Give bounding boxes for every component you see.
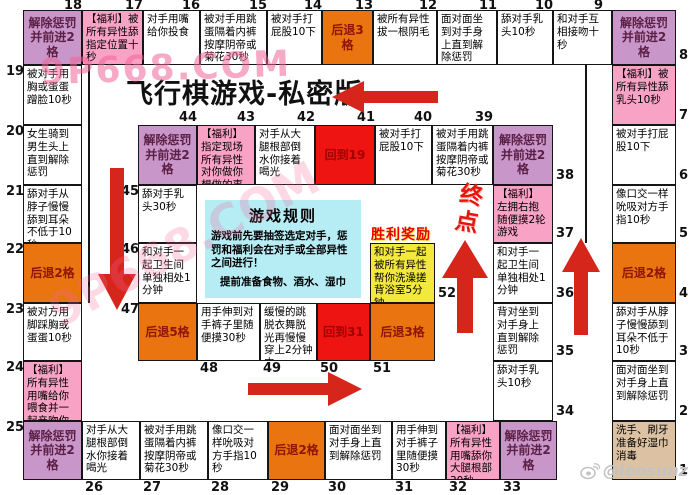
cell-text: 后退3格: [326, 23, 369, 52]
board-cell-29: 后退2格: [268, 421, 325, 480]
board-cell-48: 用手伸到对手裤子里随便摸30秒: [197, 303, 260, 361]
cell-number: 42: [297, 112, 315, 124]
cell-text: 被对手用跳蛋隔着内裤按摩阴帝或菊花30秒: [436, 128, 489, 179]
board-cell-7: 【福利】被所有异性舔乳头10秒: [612, 65, 676, 125]
cell-number: 11: [479, 0, 497, 12]
cell-text: 【福利】所有异性用嘴舔你大腿根部30秒: [450, 424, 496, 480]
cell-text: 对手从大腿根部倒水你接着喝光: [86, 424, 136, 475]
cell-number: 17: [125, 0, 143, 12]
cell-text: 被所有异性拔一根阴毛: [377, 13, 433, 39]
cell-text: 和对手一起卫生间单独相处1分钟: [497, 246, 549, 297]
board-cell-25: 解除惩罚并前进2格: [23, 421, 82, 480]
cell-number: 28: [211, 482, 229, 494]
cell-text: 背对坐到对手身上直到解除惩罚: [497, 306, 549, 357]
arrow-up-right-icon: [562, 238, 600, 335]
board-cell-52: 和对手一起被所有异性帮你洗澡搓背浴室5分钟: [370, 243, 435, 303]
cell-number: 44: [179, 112, 197, 124]
cell-text: 后退5格: [145, 325, 189, 340]
board-cell-33: 解除惩罚并前进2格: [500, 421, 557, 480]
board-cell-2: 面对面坐到对手身上直到解除惩罚: [612, 361, 676, 421]
right-divider-line: [585, 65, 587, 243]
board-cell-10: 舔对手乳头10秒: [497, 10, 553, 65]
cell-text: 和对手一起被所有异性帮你洗澡搓背浴室5分钟: [374, 246, 431, 303]
board-cell-36: 和对手一起卫生间单独相处1分钟: [493, 243, 553, 303]
cell-number: 39: [475, 112, 493, 124]
cell-number: 18: [64, 0, 82, 12]
cell-number: 10: [535, 0, 553, 12]
cell-text: 舔对手乳头10秒: [497, 364, 549, 390]
cell-number: 43: [237, 112, 255, 124]
cell-text: 被对手打屁股10下: [271, 13, 318, 39]
credit-text: @leosunz: [603, 461, 688, 480]
cell-number: 31: [395, 482, 413, 494]
cell-text: 被对手打屁股10下: [616, 128, 672, 154]
board-cell-11: 面对面坐到对手身上直到解除惩罚: [437, 10, 497, 65]
cell-text: 后退2格: [622, 266, 666, 281]
arrow-left-icon: [332, 81, 438, 113]
cell-text: 像口交一样吮吸对方手指10秒: [616, 188, 672, 226]
cell-number: 7: [679, 110, 688, 122]
board-cell-38: 解除惩罚并前进2格: [493, 125, 553, 185]
cell-text: 【福利】左拥右抱随便摸2轮游戏: [497, 188, 549, 239]
cell-number: 13: [355, 0, 373, 12]
cell-text: 解除惩罚并前进2格: [142, 133, 193, 177]
cell-text: 和对手互相接吻十秒: [557, 13, 608, 51]
board-cell-31: 用手伸到对手裤子里随便摸30秒: [392, 421, 446, 480]
cell-text: 像口交一样吮吸对方手指10秒: [212, 424, 264, 475]
board-cell-26: 对手从大腿根部倒水你接着喝光: [82, 421, 140, 480]
cell-number: 20: [6, 126, 24, 138]
board-cell-9: 和对手互相接吻十秒: [553, 10, 612, 65]
cell-text: 回到19: [325, 148, 366, 163]
cell-number: 9: [594, 0, 603, 12]
cell-number: 41: [357, 112, 375, 124]
board-cell-21: 舔对手从脖子慢慢舔到耳朵不低于10秒: [23, 185, 82, 243]
board-cell-27: 被对手用跳蛋隔着内裤按摩阴帝或菊花30秒: [140, 421, 208, 480]
board-cell-49: 缓慢的跳脱衣舞脱光再慢慢穿上2分钟内: [260, 303, 317, 361]
arrow-up-finish-icon: [442, 240, 488, 333]
board-cell-12: 被所有异性拔一根阴毛: [373, 10, 437, 65]
cell-number: 14: [304, 0, 322, 12]
cell-text: 用手伸到对手裤子里随便摸30秒: [201, 306, 256, 344]
board: 飞行棋游戏-私密版 游戏规则 游戏前先要抽签选定对手，惩罚和福利会在对手或全部异…: [0, 0, 700, 495]
cell-text: 被对手用跳蛋隔着内裤按摩阴帝或菊花30秒: [144, 424, 204, 475]
cell-text: 解除惩罚并前进2格: [27, 429, 78, 473]
cell-text: 用手伸到对手裤子里随便摸30秒: [396, 424, 442, 475]
cell-text: 面对面坐到对手身上直到解除惩罚: [616, 364, 672, 402]
cell-number: 2: [679, 406, 688, 418]
arrow-right-icon: [248, 372, 362, 406]
cell-number: 8: [679, 50, 688, 62]
cell-text: 被对手打屁股10下: [379, 128, 428, 154]
board-cell-41: 回到19: [315, 125, 375, 185]
cell-number: 26: [85, 482, 103, 494]
cell-number: 48: [200, 363, 218, 375]
cell-text: 回到31: [323, 325, 364, 340]
cell-number: 30: [328, 482, 346, 494]
board-cell-50: 回到31: [317, 303, 370, 361]
board-cell-13: 后退3格: [322, 10, 373, 65]
cell-number: 6: [679, 170, 688, 182]
victory-reward-label: 胜利奖励: [371, 224, 431, 244]
board-cell-28: 像口交一样吮吸对方手指10秒: [208, 421, 268, 480]
board-cell-47: 后退5格: [138, 303, 197, 361]
weibo-icon: [580, 462, 600, 480]
cell-number: 15: [249, 0, 267, 12]
cell-text: 解除惩罚并前进2格: [497, 133, 549, 177]
cell-number: 35: [556, 346, 574, 358]
board-cell-6: 被对手打屁股10下: [612, 125, 676, 185]
board-cell-4: 后退2格: [612, 243, 676, 303]
rules-prep-text: 提前准备食物、酒水、湿巾: [211, 276, 355, 290]
cell-text: 面对面坐到对手身上直到解除惩罚: [441, 13, 493, 64]
cell-text: 【福利】所有异性用嘴给你喂食并一起亲吻你: [27, 364, 78, 421]
board-cell-8: 解除惩罚并前进2格: [612, 10, 676, 65]
cell-number: 27: [143, 482, 161, 494]
board-cell-37: 【福利】左拥右抱随便摸2轮游戏: [493, 185, 553, 243]
cell-number: 12: [419, 0, 437, 12]
cell-number: 32: [449, 482, 467, 494]
cell-number: 38: [556, 170, 574, 182]
cell-number: 25: [6, 422, 24, 434]
cell-text: 洗手、刷牙准备好湿巾消毒: [616, 424, 672, 462]
board-cell-39: 被对手用跳蛋隔着内裤按摩阴帝或菊花30秒: [432, 125, 493, 185]
cell-text: 对手用嘴给你投食: [147, 13, 196, 39]
cell-text: 【福利】被所有异性舔乳头10秒: [616, 68, 672, 106]
cell-number: 33: [503, 482, 521, 494]
cell-text: 解除惩罚并前进2格: [504, 429, 553, 473]
cell-number: 34: [556, 406, 574, 418]
board-cell-20: 女生骑到男生头上直到解除惩罚: [23, 125, 82, 185]
finish-label: 终点: [445, 179, 488, 238]
board-cell-51: 后退3格: [370, 303, 435, 361]
watermark-top: 9P668.COM: [39, 44, 291, 94]
cell-number: 29: [271, 482, 289, 494]
cell-text: 女生骑到男生头上直到解除惩罚: [27, 128, 78, 179]
cell-text: 舔对手乳头30秒: [142, 188, 193, 214]
board-cell-3: 舔对手从脖子慢慢舔到耳朵不低于10秒: [612, 303, 676, 361]
board-cell-32: 【福利】所有异性用嘴舔你大腿根部30秒: [446, 421, 500, 480]
cell-text: 解除惩罚并前进2格: [616, 16, 672, 60]
credit-watermark: @leosunz: [580, 461, 688, 480]
cell-text: 舔对手从脖子慢慢舔到耳朵不低于10秒: [27, 188, 78, 243]
board-cell-34: 舔对手乳头10秒: [493, 361, 553, 421]
cell-number: 40: [414, 112, 432, 124]
cell-number: 23: [6, 304, 24, 316]
cell-number: 16: [182, 0, 200, 12]
board-cell-30: 面对面坐到对手身上直到解除惩罚: [325, 421, 392, 480]
cell-number: 3: [679, 346, 688, 358]
board-cell-40: 被对手打屁股10下: [375, 125, 432, 185]
cell-text: 【福利】指定现场所有异性对你做你想做的事: [201, 128, 251, 185]
cell-number: 19: [6, 66, 24, 78]
board-cell-24: 【福利】所有异性用嘴给你喂食并一起亲吻你: [23, 361, 82, 421]
cell-number: 4: [679, 288, 688, 300]
cell-number: 51: [373, 363, 391, 375]
cell-number: 24: [6, 362, 24, 374]
cell-text: 舔对手从脖子慢慢舔到耳朵不低于10秒: [616, 306, 672, 357]
cell-text: 后退2格: [274, 443, 318, 458]
board-cell-35: 背对坐到对手身上直到解除惩罚: [493, 303, 553, 361]
board-cell-5: 像口交一样吮吸对方手指10秒: [612, 185, 676, 243]
cell-number: 21: [6, 186, 24, 198]
board-cell-44: 解除惩罚并前进2格: [138, 125, 197, 185]
cell-text: 舔对手乳头10秒: [501, 13, 549, 39]
cell-text: 缓慢的跳脱衣舞脱光再慢慢穿上2分钟内: [264, 306, 313, 361]
board-cell-43: 【福利】指定现场所有异性对你做你想做的事: [197, 125, 255, 185]
cell-number: 5: [679, 228, 688, 240]
cell-number: 22: [6, 244, 24, 256]
cell-text: 面对面坐到对手身上直到解除惩罚: [329, 424, 388, 462]
cell-text: 后退3格: [380, 325, 424, 340]
